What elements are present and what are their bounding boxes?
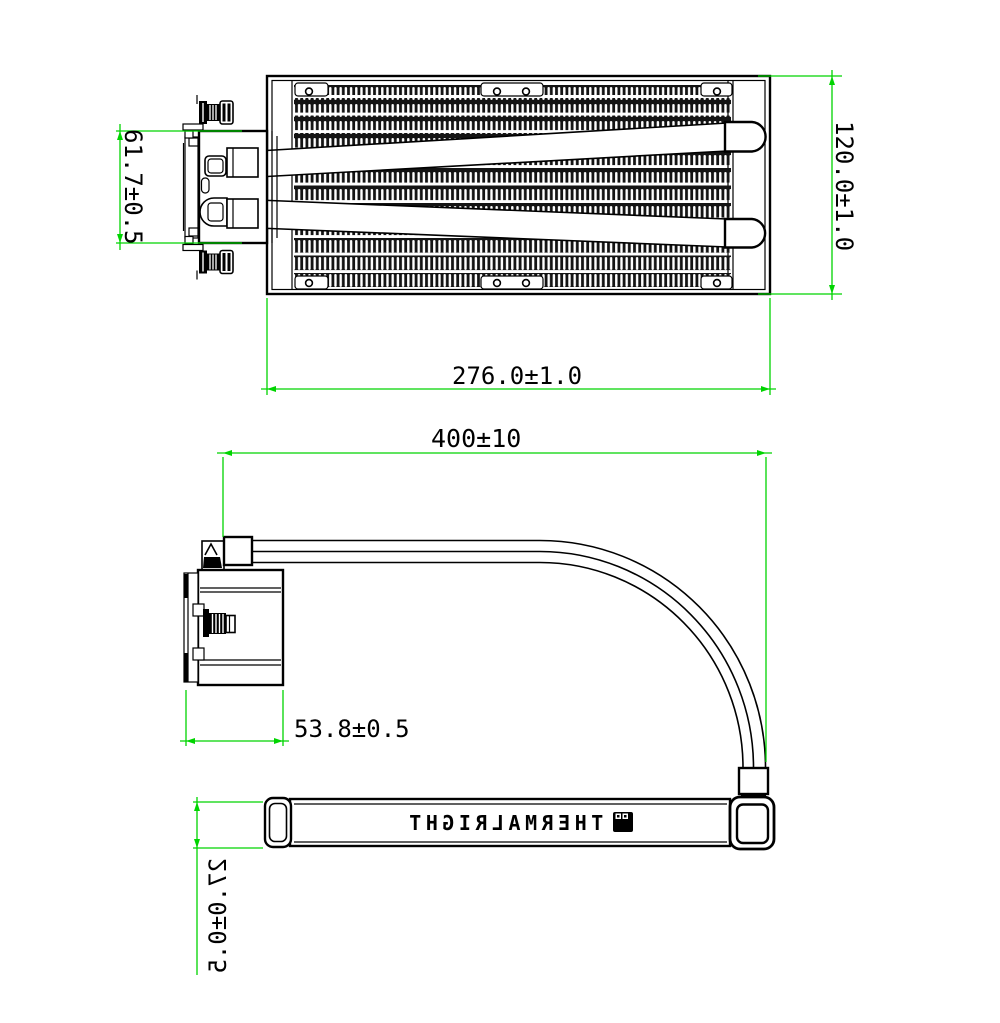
- radiator-tube-fitting: [739, 768, 768, 794]
- dim-label-pump-depth: 53.8±0.5: [294, 715, 410, 743]
- tube-end-cap-1: [725, 122, 766, 152]
- pump-bracket: [185, 137, 198, 238]
- dim-radiator-thickness: 27.0±0.5: [193, 797, 263, 975]
- pump-tube-fitting: [202, 537, 252, 570]
- dim-tube-length: 400±10: [217, 424, 772, 762]
- side-view: THERMALRIGHT: [184, 537, 775, 849]
- dim-pump-depth: 53.8±0.5: [180, 690, 410, 746]
- pump-block-top-view: [183, 95, 277, 280]
- dim-radiator-length: 276.0±1.0: [261, 298, 776, 395]
- dim-radiator-width: 120.0±1.0: [758, 70, 858, 300]
- dim-label-radiator-thickness-mirror: 27.0±0.5: [204, 858, 232, 974]
- pump-block-side-view: [184, 570, 284, 685]
- dim-label-radiator-width: 120.0±1.0: [830, 121, 858, 251]
- dim-label-pump-width: 61.7±0.5: [119, 129, 147, 245]
- dim-label-radiator-length: 276.0±1.0: [452, 362, 582, 390]
- radiator-side-view: THERMALRIGHT: [265, 768, 774, 849]
- hose-elbow-lower: [200, 198, 258, 228]
- brand-text-mirrored: THERMALRIGHT: [405, 811, 604, 835]
- brand-label: THERMALRIGHT: [405, 811, 604, 835]
- cad-drawing-page: 61.7±0.5 120.0±1.0 276.0±1.0: [0, 0, 1000, 1023]
- aio-cooler-drawing: 61.7±0.5 120.0±1.0 276.0±1.0: [0, 0, 1000, 1023]
- dim-label-radiator-thickness: 27.0±0.5: [204, 858, 232, 974]
- thermalright-logo: [613, 812, 633, 832]
- top-view-radiator: [183, 76, 770, 294]
- dim-label-tube-length: 400±10: [431, 424, 521, 453]
- tube-end-cap-2: [725, 219, 765, 248]
